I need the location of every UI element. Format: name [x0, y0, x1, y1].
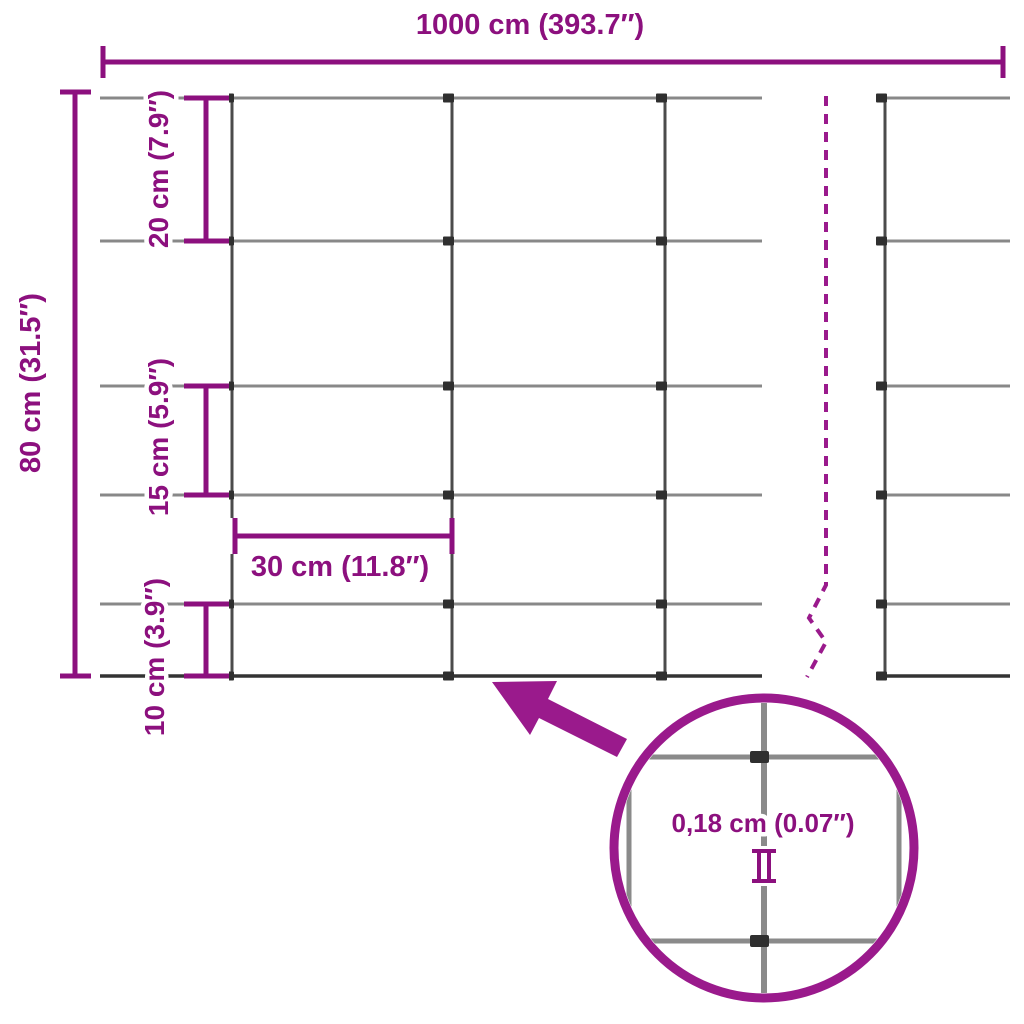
magnifier-detail-circle: 0,18 cm (0.07″)	[614, 698, 914, 998]
dimension-row-gap-20: 20 cm (7.9″)	[143, 90, 229, 248]
row-gap-15-label: 15 cm (5.9″)	[143, 358, 174, 516]
column-gap-30-label: 30 cm (11.8″)	[251, 551, 429, 583]
wire-clamp	[750, 935, 769, 947]
dimension-diagram: 1000 cm (393.7″) 80 cm (31.5″) 20 cm (7.…	[0, 0, 1024, 1024]
dimension-row-gap-15: 15 cm (5.9″)	[143, 358, 229, 516]
magnifier-arrow-icon	[492, 681, 627, 757]
break-indicator-dashed-line	[807, 96, 826, 677]
row-gap-10-label: 10 cm (3.9″)	[139, 578, 170, 736]
dimension-total-height: 80 cm (31.5″)	[15, 92, 91, 676]
row-gap-20-label: 20 cm (7.9″)	[143, 90, 174, 248]
fence-mesh-right-panel	[876, 94, 1010, 681]
wire-clamp	[750, 751, 769, 763]
dimension-total-width: 1000 cm (393.7″)	[103, 9, 1003, 78]
total-height-label: 80 cm (31.5″)	[15, 293, 47, 473]
diagram-svg: 1000 cm (393.7″) 80 cm (31.5″) 20 cm (7.…	[0, 0, 1024, 1024]
wire-thickness-label: 0,18 cm (0.07″)	[671, 808, 854, 838]
total-width-label: 1000 cm (393.7″)	[416, 9, 644, 41]
dimension-column-gap-30: 30 cm (11.8″)	[235, 518, 452, 583]
wire-gauge-mark-halo	[752, 851, 776, 881]
dimension-row-gap-10: 10 cm (3.9″)	[139, 578, 229, 736]
